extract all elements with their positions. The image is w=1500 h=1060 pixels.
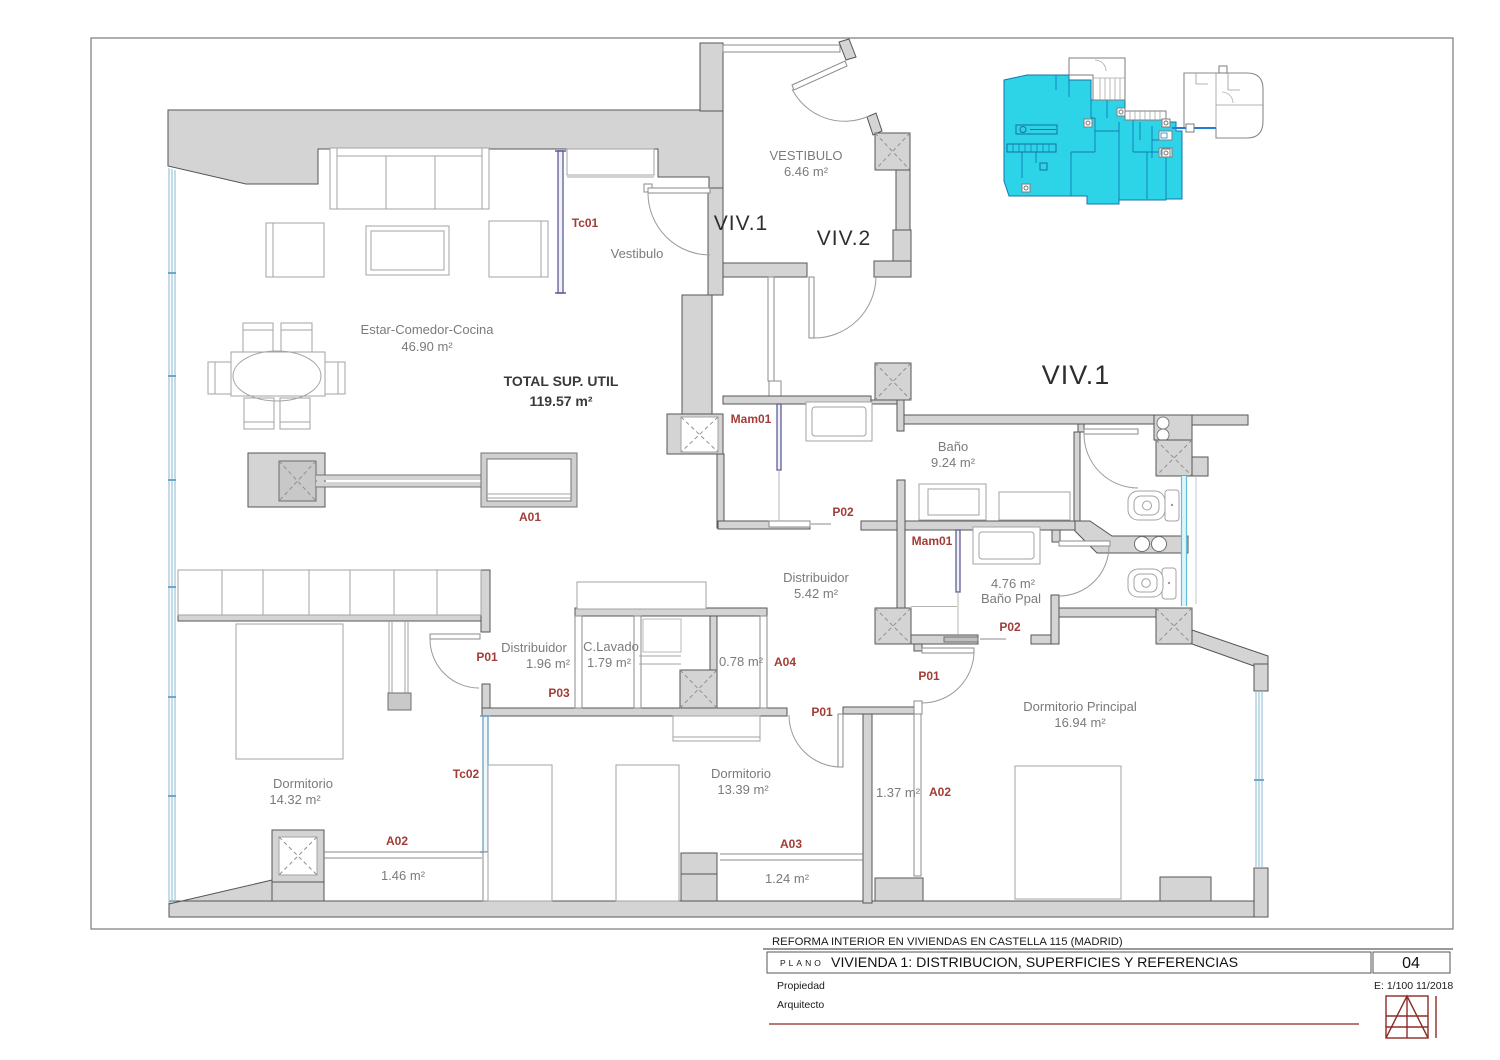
svg-text:1.46 m²: 1.46 m² xyxy=(381,868,426,883)
svg-text:Vestibulo: Vestibulo xyxy=(611,246,664,261)
svg-text:TOTAL SUP. UTIL: TOTAL SUP. UTIL xyxy=(504,373,619,389)
svg-text:4.76 m²: 4.76 m² xyxy=(991,576,1036,591)
svg-text:14.32 m²: 14.32 m² xyxy=(269,792,321,807)
svg-text:Estar-Comedor-Cocina: Estar-Comedor-Cocina xyxy=(361,322,495,337)
svg-text:VIVIENDA 1: DISTRIBUCION, SUPE: VIVIENDA 1: DISTRIBUCION, SUPERFICIES Y … xyxy=(831,955,1238,971)
svg-text:Baño: Baño xyxy=(938,439,968,454)
svg-text:VESTIBULO: VESTIBULO xyxy=(770,148,843,163)
svg-text:1.96 m²: 1.96 m² xyxy=(526,656,571,671)
svg-text:C.Lavado: C.Lavado xyxy=(583,639,639,654)
svg-text:13.39 m²: 13.39 m² xyxy=(717,782,769,797)
svg-text:Distribuidor: Distribuidor xyxy=(501,640,567,655)
svg-text:Dormitorio Principal: Dormitorio Principal xyxy=(1023,699,1137,714)
svg-text:P03: P03 xyxy=(548,686,570,700)
svg-text:6.46 m²: 6.46 m² xyxy=(784,164,829,179)
svg-text:VIV.1: VIV.1 xyxy=(714,212,768,235)
svg-text:0.78 m²: 0.78 m² xyxy=(719,654,764,669)
svg-text:Mam01: Mam01 xyxy=(731,412,772,426)
svg-text:A02: A02 xyxy=(929,785,951,799)
svg-text:9.24 m²: 9.24 m² xyxy=(931,455,976,470)
svg-text:Distribuidor: Distribuidor xyxy=(783,570,849,585)
svg-text:119.57 m²: 119.57 m² xyxy=(529,393,592,409)
svg-text:A02: A02 xyxy=(386,834,408,848)
svg-text:P02: P02 xyxy=(999,620,1021,634)
svg-text:A03: A03 xyxy=(780,837,802,851)
svg-text:Dormitorio: Dormitorio xyxy=(711,766,771,781)
svg-text:1.24 m²: 1.24 m² xyxy=(765,871,810,886)
svg-text:5.42 m²: 5.42 m² xyxy=(794,586,839,601)
svg-text:PLANO: PLANO xyxy=(780,958,824,968)
svg-text:Propiedad: Propiedad xyxy=(777,980,825,992)
svg-text:16.94 m²: 16.94 m² xyxy=(1054,715,1106,730)
svg-text:E: 1/100 11/2018: E: 1/100 11/2018 xyxy=(1374,980,1453,992)
svg-text:1.37 m²: 1.37 m² xyxy=(876,785,921,800)
svg-text:P01: P01 xyxy=(811,705,833,719)
svg-text:VIV.1: VIV.1 xyxy=(1042,360,1111,390)
svg-text:VIV.2: VIV.2 xyxy=(817,227,871,250)
svg-text:Dormitorio: Dormitorio xyxy=(273,776,333,791)
svg-text:P02: P02 xyxy=(832,505,854,519)
svg-text:A04: A04 xyxy=(774,655,796,669)
svg-text:Tc02: Tc02 xyxy=(453,767,480,781)
svg-text:04: 04 xyxy=(1402,955,1420,972)
svg-text:1.79 m²: 1.79 m² xyxy=(587,655,632,670)
svg-text:Arquitecto: Arquitecto xyxy=(777,999,824,1011)
svg-text:A01: A01 xyxy=(519,510,541,524)
svg-text:P01: P01 xyxy=(918,669,940,683)
svg-text:REFORMA INTERIOR EN VIVIENDAS: REFORMA INTERIOR EN VIVIENDAS EN CASTELL… xyxy=(772,936,1123,948)
svg-text:P01: P01 xyxy=(476,650,498,664)
svg-text:Baño Ppal: Baño Ppal xyxy=(981,591,1041,606)
svg-text:Mam01: Mam01 xyxy=(912,534,953,548)
svg-text:Tc01: Tc01 xyxy=(572,216,599,230)
svg-text:46.90 m²: 46.90 m² xyxy=(401,339,453,354)
